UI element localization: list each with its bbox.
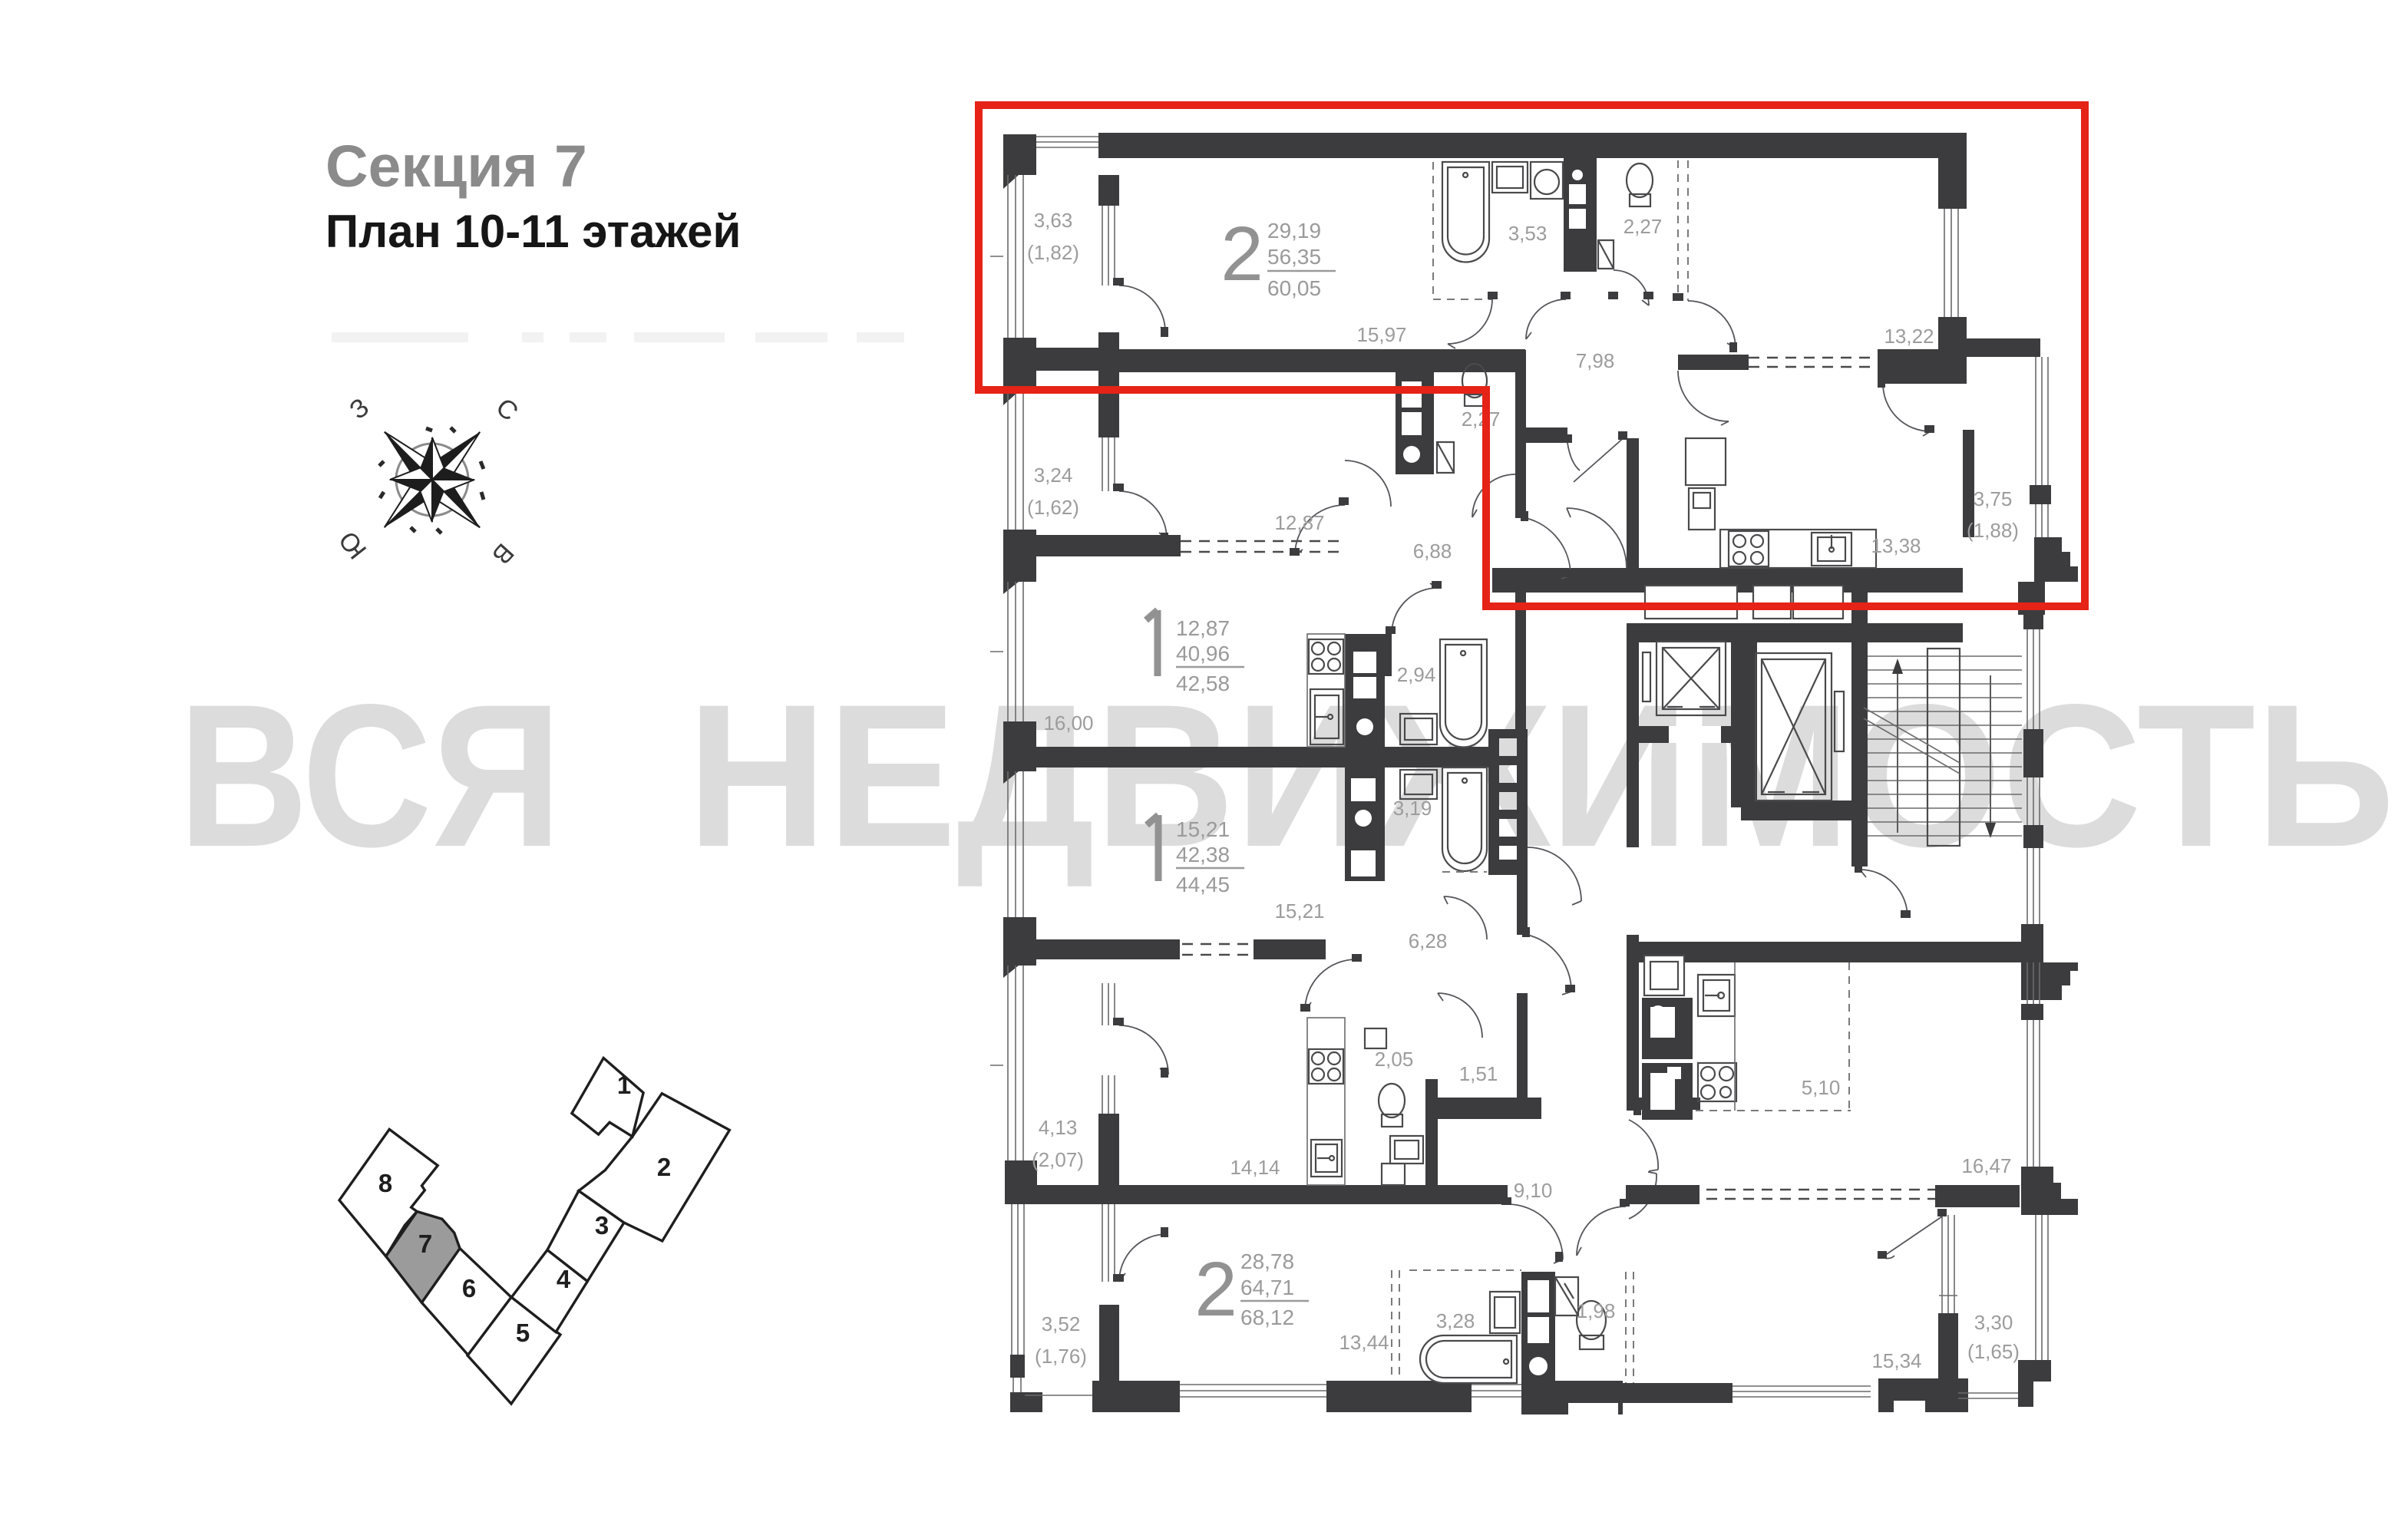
svg-text:3,28: 3,28 xyxy=(1436,1309,1475,1332)
svg-text:3: 3 xyxy=(595,1211,609,1240)
svg-text:15,21: 15,21 xyxy=(1176,817,1230,841)
svg-text:12,87: 12,87 xyxy=(1176,616,1230,640)
svg-text:13,22: 13,22 xyxy=(1884,325,1934,348)
svg-text:44,45: 44,45 xyxy=(1176,873,1230,896)
svg-text:13,44: 13,44 xyxy=(1339,1331,1389,1354)
svg-text:40,96: 40,96 xyxy=(1176,642,1230,665)
svg-text:56,35: 56,35 xyxy=(1267,245,1321,269)
svg-text:14,14: 14,14 xyxy=(1230,1156,1280,1179)
svg-text:15,97: 15,97 xyxy=(1356,323,1406,346)
svg-text:5: 5 xyxy=(516,1319,530,1347)
svg-text:64,71: 64,71 xyxy=(1240,1276,1294,1299)
svg-text:7: 7 xyxy=(418,1230,432,1258)
svg-text:12,87: 12,87 xyxy=(1274,511,1324,534)
svg-text:42,58: 42,58 xyxy=(1176,672,1230,695)
svg-text:15,34: 15,34 xyxy=(1871,1349,1921,1372)
svg-text:(1,82): (1,82) xyxy=(1027,241,1079,264)
svg-text:60,05: 60,05 xyxy=(1267,276,1321,300)
svg-text:42,38: 42,38 xyxy=(1176,843,1230,867)
svg-text:3,75: 3,75 xyxy=(1974,487,2013,510)
svg-text:6,88: 6,88 xyxy=(1413,540,1452,563)
svg-text:13,38: 13,38 xyxy=(1871,534,1921,557)
svg-text:1,51: 1,51 xyxy=(1459,1062,1498,1085)
svg-text:1: 1 xyxy=(617,1071,631,1099)
svg-text:(1,65): (1,65) xyxy=(1967,1340,2020,1363)
svg-text:План 10-11 этажей: План 10-11 этажей xyxy=(325,206,741,257)
svg-text:3,63: 3,63 xyxy=(1034,209,1073,232)
svg-text:(1,62): (1,62) xyxy=(1027,496,1079,519)
svg-text:6: 6 xyxy=(462,1274,476,1302)
svg-text:2,27: 2,27 xyxy=(1462,408,1501,431)
svg-text:2,05: 2,05 xyxy=(1375,1048,1414,1071)
svg-text:1,98: 1,98 xyxy=(1577,1299,1616,1322)
svg-text:(2,07): (2,07) xyxy=(1032,1148,1084,1171)
svg-text:7,98: 7,98 xyxy=(1576,349,1615,372)
svg-text:2: 2 xyxy=(1221,211,1263,297)
svg-text:28,78: 28,78 xyxy=(1240,1249,1294,1273)
svg-text:(1,88): (1,88) xyxy=(1967,519,2019,542)
svg-text:3,52: 3,52 xyxy=(1042,1312,1081,1335)
svg-text:3,24: 3,24 xyxy=(1034,464,1073,487)
svg-text:29,19: 29,19 xyxy=(1267,219,1321,243)
svg-text:15,21: 15,21 xyxy=(1274,900,1324,923)
svg-text:8: 8 xyxy=(378,1169,392,1197)
svg-text:6,28: 6,28 xyxy=(1409,929,1448,952)
svg-text:2,94: 2,94 xyxy=(1397,663,1436,686)
svg-text:2: 2 xyxy=(657,1153,671,1181)
svg-text:4: 4 xyxy=(557,1265,571,1293)
svg-text:16,47: 16,47 xyxy=(1961,1154,2011,1177)
svg-text:9,10: 9,10 xyxy=(1514,1179,1553,1202)
svg-text:(1,76): (1,76) xyxy=(1035,1345,1087,1368)
svg-text:2: 2 xyxy=(1194,1246,1237,1332)
svg-text:16,00: 16,00 xyxy=(1043,711,1093,734)
svg-text:Секция 7: Секция 7 xyxy=(325,134,587,200)
svg-text:3,53: 3,53 xyxy=(1508,222,1548,245)
svg-text:3,30: 3,30 xyxy=(1974,1311,2013,1334)
svg-text:5,10: 5,10 xyxy=(1802,1076,1841,1099)
svg-text:НЕДВИЖИМОСТЬ: НЕДВИЖИМОСТЬ xyxy=(687,662,2395,890)
svg-text:3,19: 3,19 xyxy=(1393,797,1432,820)
svg-text:4,13: 4,13 xyxy=(1039,1116,1078,1139)
svg-text:2,27: 2,27 xyxy=(1624,215,1663,238)
svg-text:68,12: 68,12 xyxy=(1240,1306,1294,1329)
svg-text:ВСЯ: ВСЯ xyxy=(178,662,562,890)
